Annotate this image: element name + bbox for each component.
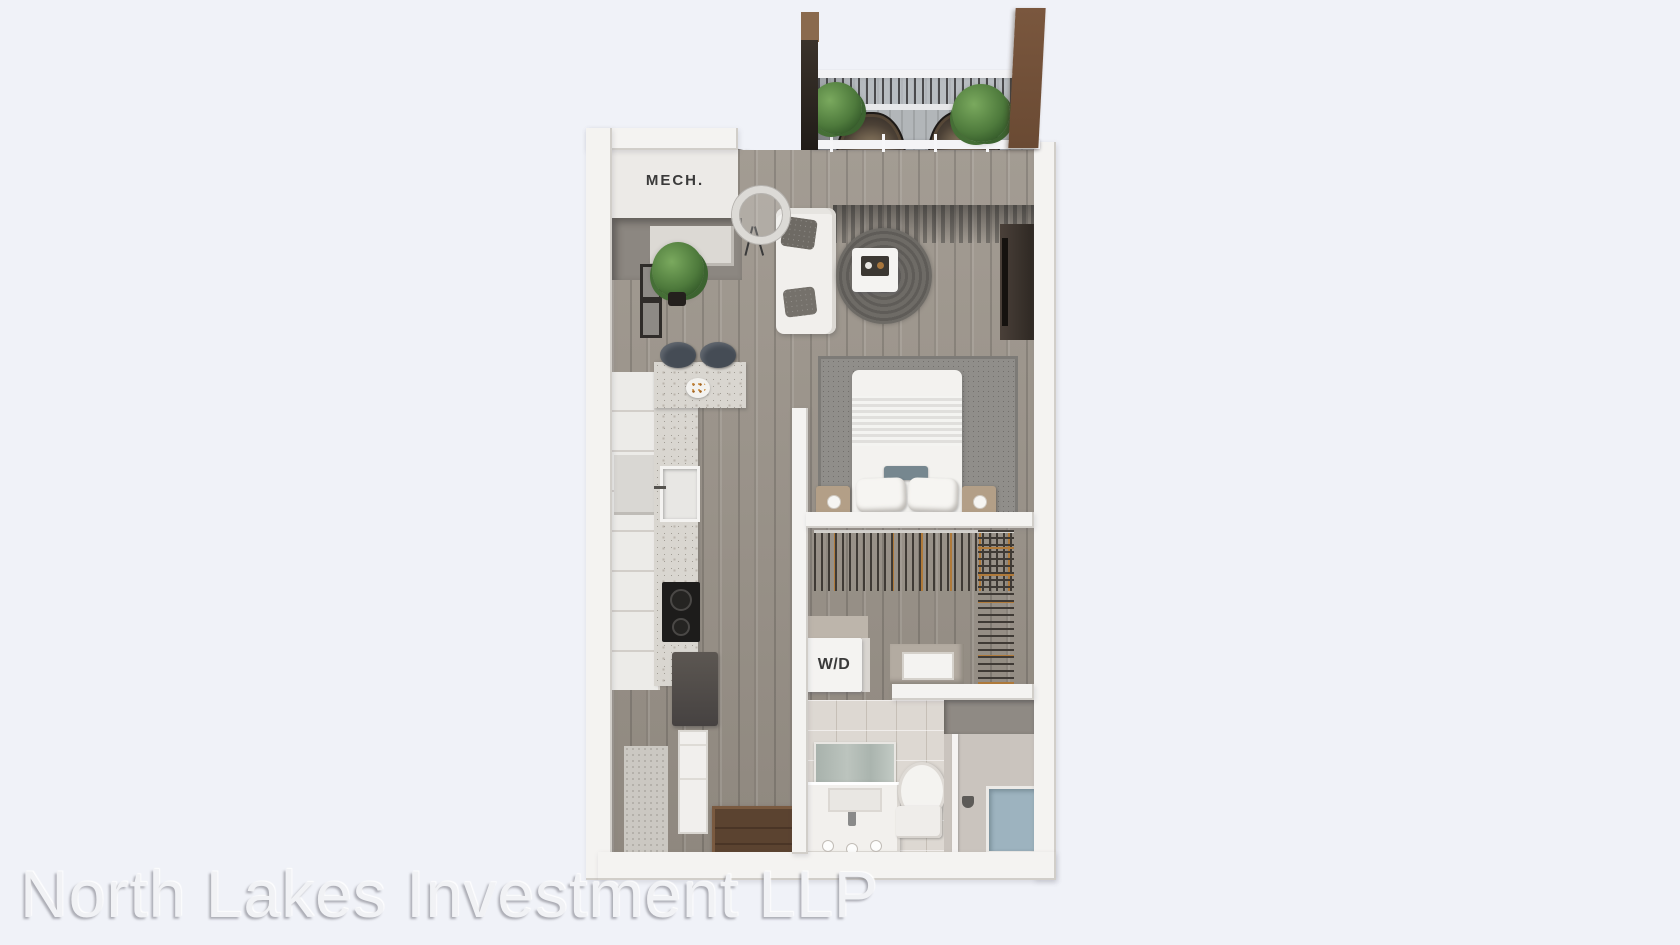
watermark-text: North Lakes Investment LLP [20, 856, 879, 932]
entry-door [712, 806, 798, 858]
wall-closet-bath-divider [892, 684, 1034, 700]
entry-runner-mat [624, 746, 668, 858]
plant-pot [668, 292, 686, 306]
balcony-pillar-cap [801, 12, 819, 42]
cooktop-burner [672, 618, 690, 636]
balcony-near-rail [812, 140, 1040, 149]
kitchen-cabinet-band [612, 372, 660, 690]
tv-screen [1002, 238, 1008, 326]
bed-blanket [852, 396, 962, 446]
nightstand-lamp [973, 495, 987, 509]
living-room-plant [652, 242, 704, 298]
closet-counter-sink [902, 652, 954, 680]
floorplan-render: MECH. [0, 0, 1680, 945]
bed-pillow [855, 477, 906, 513]
vanity-knob [870, 840, 882, 852]
coffee-table [852, 248, 898, 292]
tray-item [865, 262, 872, 269]
bed-pillow [907, 477, 958, 513]
bar-stool [700, 342, 736, 368]
tv-console [1000, 224, 1034, 340]
wall-right-exterior [1034, 142, 1056, 880]
bread-plate [686, 378, 710, 398]
shower-glass-panel [952, 734, 958, 852]
wall-bedroom-closet-divider [806, 512, 1034, 528]
balcony-rail-post [934, 134, 937, 152]
mech-room-label: MECH. [620, 172, 730, 189]
screenshot-canvas: MECH. [0, 0, 1680, 945]
vanity-faucet [848, 810, 856, 826]
washer-dryer-top [806, 616, 868, 640]
toilet-tank [896, 806, 942, 838]
balcony-rail-post [882, 134, 885, 152]
shower-half-wall [944, 700, 1034, 734]
balcony-railing-top-rail [818, 70, 1016, 78]
shower-glass-enclosure [986, 786, 1038, 854]
coffee-table-tray [861, 256, 889, 276]
washer-dryer-unit: W/D [806, 638, 862, 692]
vanity-knob [822, 840, 834, 852]
balcony-plant-right [952, 84, 1010, 142]
nightstand-lamp [827, 495, 841, 509]
cooktop-burner [670, 589, 692, 611]
balcony-pillar [801, 40, 818, 150]
sofa-pillow [782, 286, 817, 318]
bathroom-vanity [806, 782, 900, 854]
tray-item [877, 262, 884, 269]
bathroom-mirror [814, 742, 896, 786]
kitchen-faucet [654, 486, 666, 489]
washer-dryer-side [862, 638, 870, 692]
kitchen-appliance [614, 455, 658, 515]
shower-head [962, 796, 974, 808]
refrigerator [672, 652, 718, 726]
wall-left-exterior [586, 128, 612, 880]
cooktop [662, 582, 700, 642]
wall-art-frame [640, 300, 662, 338]
floor-lamp [732, 186, 790, 244]
kitchen-sink [660, 466, 700, 522]
bread-rolls [690, 381, 706, 394]
wall-hallway-divider [792, 408, 808, 854]
balcony-brown-accent-wall [1008, 8, 1045, 148]
vanity-sink-basin [828, 788, 882, 812]
bar-stool [660, 342, 696, 368]
washer-dryer-label: W/D [818, 656, 851, 674]
entry-side-door [678, 730, 708, 834]
balcony-rail-post [830, 134, 833, 152]
closet-folding-counter [890, 644, 964, 684]
bed [852, 370, 962, 520]
